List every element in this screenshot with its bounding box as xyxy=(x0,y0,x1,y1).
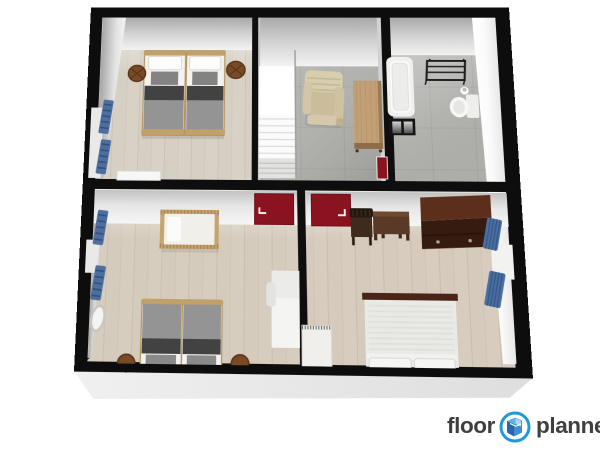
svg-text:planner: planner xyxy=(536,413,600,438)
svg-text:floor: floor xyxy=(447,413,496,438)
